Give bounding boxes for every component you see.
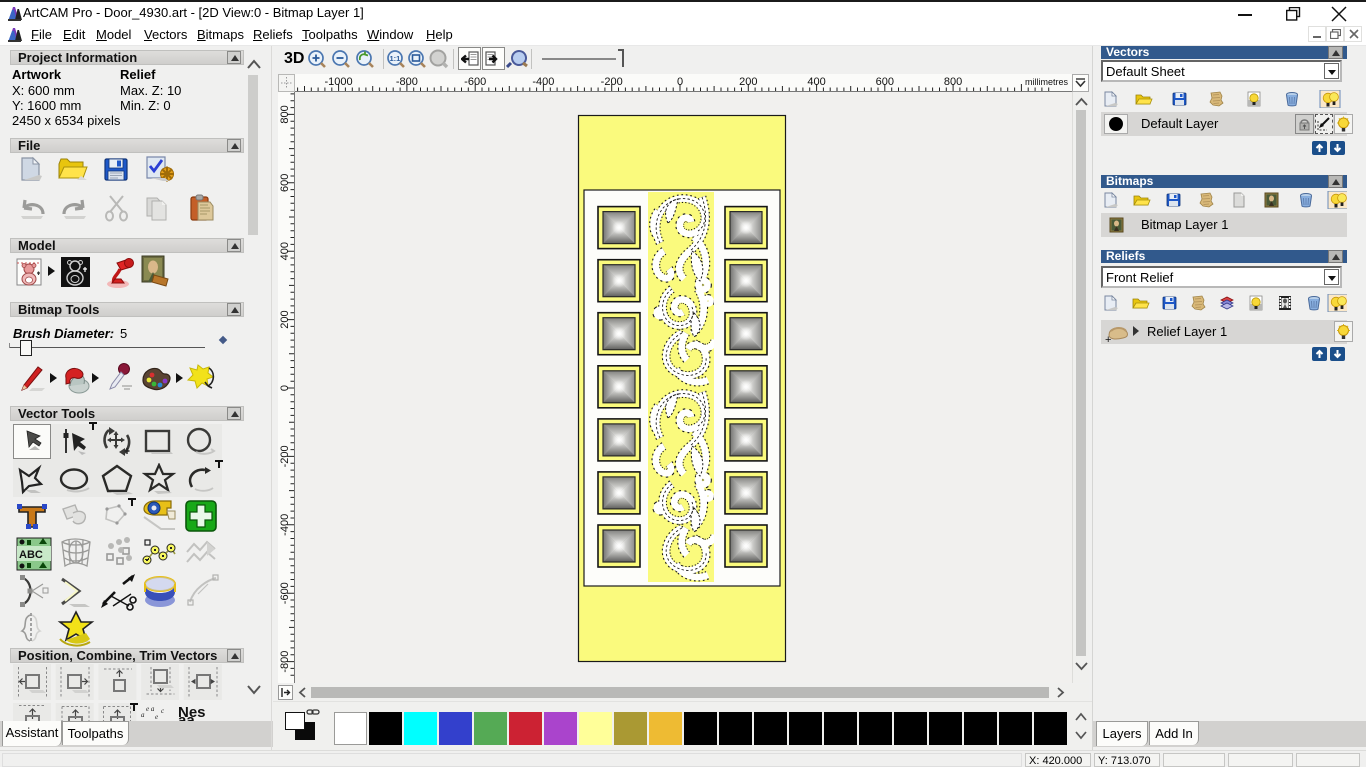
svg-text:400: 400 [279, 242, 291, 260]
svg-text:400: 400 [807, 76, 825, 88]
svg-text:a: a [141, 711, 145, 719]
svg-text:-400: -400 [279, 514, 291, 536]
svg-text:800: 800 [279, 105, 291, 123]
svg-text:-1000: -1000 [325, 76, 353, 88]
svg-text:-400: -400 [532, 76, 554, 88]
svg-text:e a: e a [146, 705, 155, 713]
svg-text:800: 800 [944, 76, 962, 88]
svg-text:200: 200 [739, 76, 757, 88]
svg-text:-600: -600 [279, 582, 291, 604]
svg-text:1:1: 1:1 [390, 54, 401, 63]
svg-text:e: e [155, 713, 158, 721]
svg-text:200: 200 [279, 310, 291, 328]
svg-text:ABC: ABC [19, 549, 43, 561]
svg-text:0: 0 [279, 385, 291, 391]
svg-text:-600: -600 [464, 76, 486, 88]
svg-text:0: 0 [677, 76, 683, 88]
svg-text:-200: -200 [279, 445, 291, 467]
svg-text:-200: -200 [601, 76, 623, 88]
svg-text:600: 600 [876, 76, 894, 88]
svg-text:c: c [161, 707, 165, 715]
svg-text:+: + [1105, 334, 1111, 344]
svg-text:-800: -800 [396, 76, 418, 88]
svg-text:600: 600 [279, 174, 291, 192]
svg-text:-800: -800 [279, 651, 291, 673]
svg-text:millimetres: millimetres [1025, 77, 1069, 87]
